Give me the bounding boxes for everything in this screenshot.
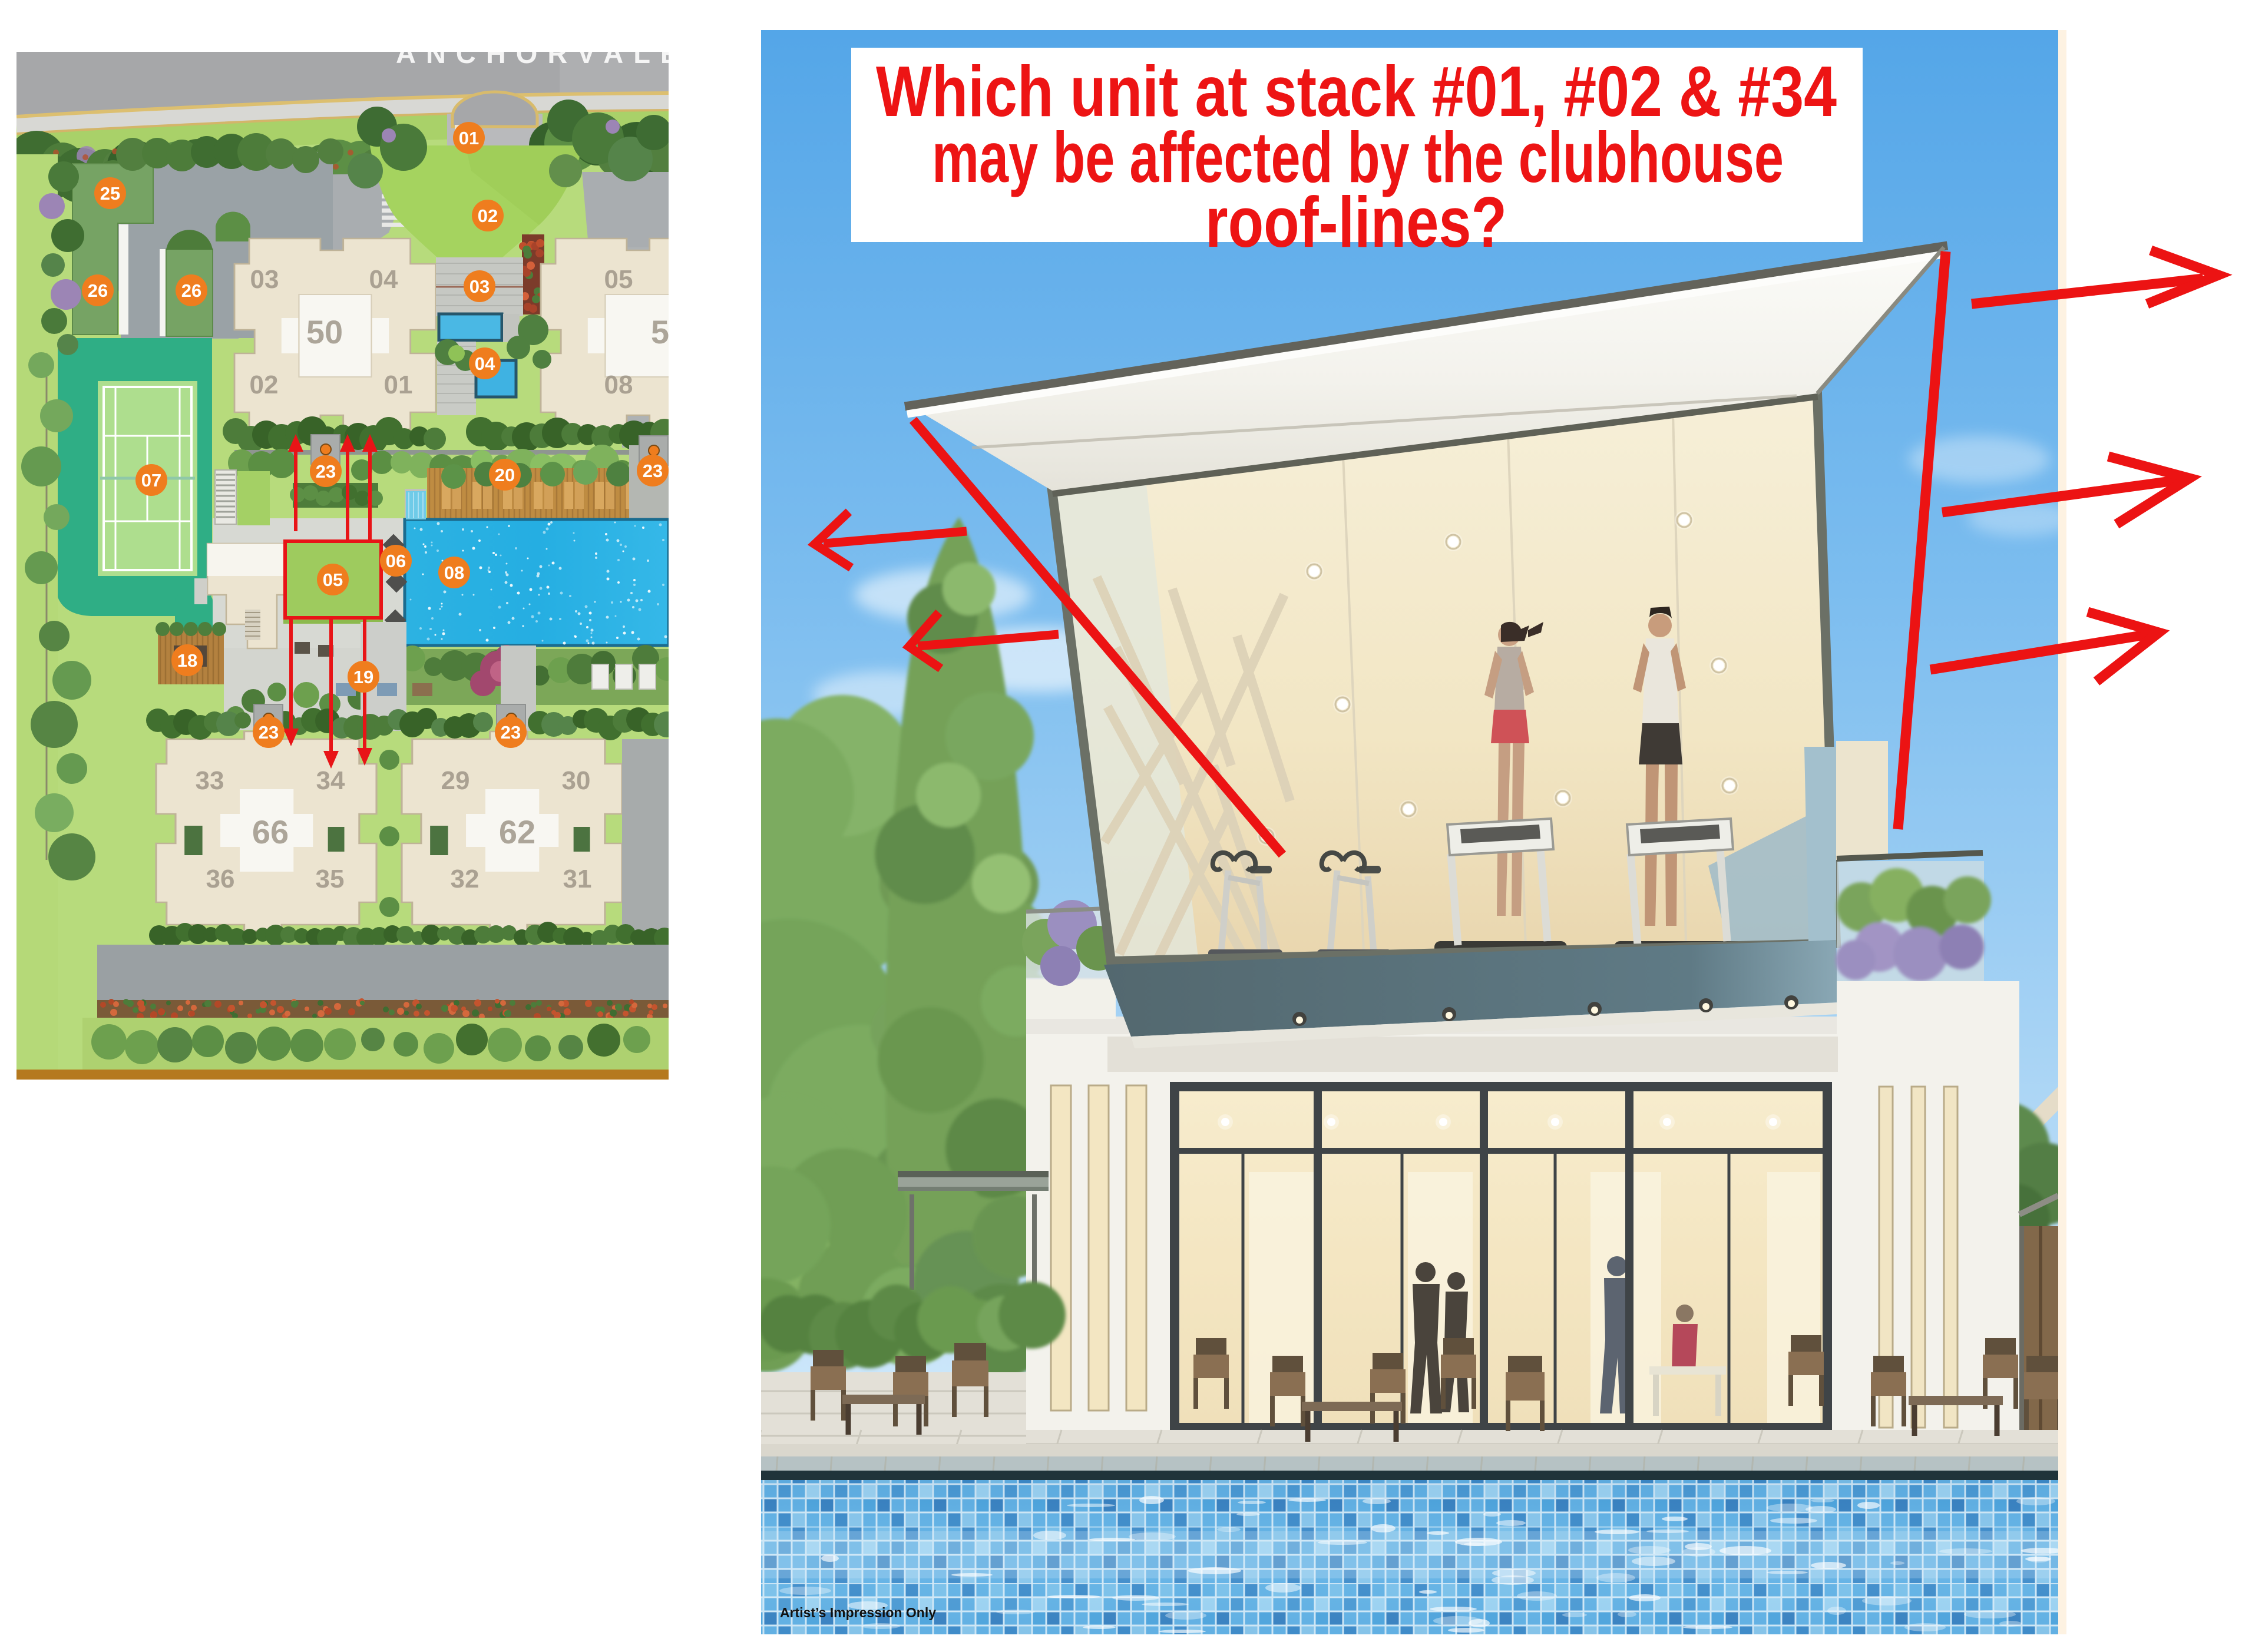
svg-text:29: 29 [441,766,470,795]
svg-text:04: 04 [369,265,398,294]
svg-text:05: 05 [323,570,343,590]
svg-text:18: 18 [177,650,197,671]
svg-text:19: 19 [353,667,373,687]
svg-text:32: 32 [451,865,480,893]
svg-text:02: 02 [478,206,498,226]
svg-text:03: 03 [250,265,279,294]
svg-text:roof-lines?: roof-lines? [1205,182,1507,262]
svg-text:Artist’s Impression Only: Artist’s Impression Only [780,1605,936,1620]
svg-text:01: 01 [459,128,479,148]
svg-text:26: 26 [181,280,201,301]
svg-text:36: 36 [206,865,235,893]
svg-text:01: 01 [384,370,413,399]
svg-text:23: 23 [316,461,336,482]
svg-text:ANCHORVALE: ANCHORVALE [396,38,689,69]
svg-text:62: 62 [499,813,535,850]
svg-text:26: 26 [88,280,108,301]
svg-text:08: 08 [444,562,464,583]
svg-text:23: 23 [259,722,279,743]
svg-text:30: 30 [562,766,591,795]
svg-text:23: 23 [501,722,521,743]
svg-text:20: 20 [495,465,515,485]
svg-text:50: 50 [306,313,343,350]
svg-text:34: 34 [316,766,345,795]
svg-text:08: 08 [604,370,633,399]
svg-text:23: 23 [643,461,663,481]
svg-text:02: 02 [250,370,279,399]
svg-text:33: 33 [196,766,224,795]
svg-text:66: 66 [252,813,289,850]
svg-text:03: 03 [469,276,490,297]
svg-text:52: 52 [651,313,687,350]
svg-text:25: 25 [100,183,120,204]
svg-text:06: 06 [386,551,406,571]
svg-text:31: 31 [563,865,592,893]
svg-text:05: 05 [604,265,633,294]
svg-text:35: 35 [316,865,345,893]
svg-text:04: 04 [475,353,495,374]
svg-text:07: 07 [141,470,161,491]
